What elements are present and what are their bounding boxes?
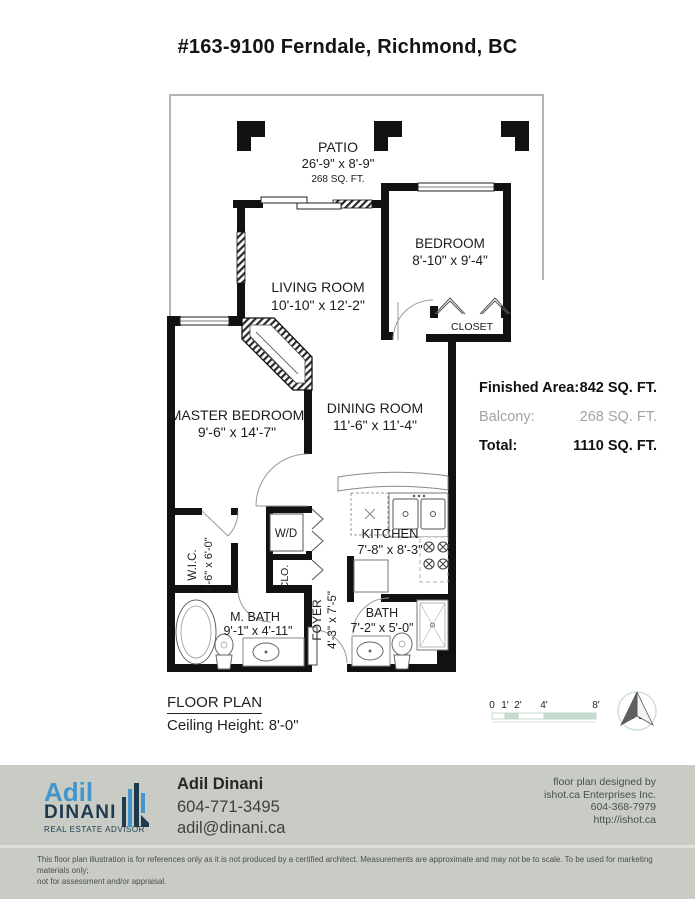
scale-tick: 8' (592, 700, 600, 711)
area-summary: Finished Area: 842 SQ. FT. Balcony: 268 … (479, 380, 657, 467)
dining-room-dims: 11'-6" x 11'-4" (333, 417, 417, 433)
floor-plan-heading: FLOOR PLAN (167, 694, 262, 714)
patio-dims: 26'-9" x 8'-9" (302, 156, 375, 171)
bath-dims: 7'-2" x 5'-0" (351, 621, 414, 635)
sink-icon (421, 499, 445, 529)
balcony-value: 268 SQ. FT. (580, 409, 657, 425)
patio-label: PATIO (318, 139, 358, 155)
toilet-base (394, 655, 410, 669)
wic-label: W.I.C. (187, 549, 199, 580)
scale-tick: 2' (514, 700, 522, 711)
living-room-label: LIVING ROOM (271, 279, 364, 295)
scale-tick: 1' (501, 700, 509, 711)
patio-slider-panel (297, 203, 341, 209)
mbath-dims: 9'-1" x 4'-11" (223, 624, 292, 638)
plan-meta: FLOOR PLAN Ceiling Height: 8'-0" (167, 694, 299, 734)
agent-name: Adil Dinani (177, 774, 285, 795)
brand-logo: Adil DINANI REAL ESTATE ADVISOR (44, 781, 174, 834)
patio-pillars (237, 121, 529, 151)
scale-tick: 4' (540, 700, 548, 711)
disclaimer-line: This floor plan illustration is for refe… (37, 854, 677, 876)
toilet-icon (392, 633, 412, 655)
compass-icon: N (618, 692, 656, 730)
tub-icon (176, 600, 216, 664)
scale-tick: 0 (489, 700, 495, 711)
hatched-walls (237, 200, 372, 283)
bedroom-dims: 8'-10" x 9'-4" (412, 253, 488, 268)
footer-divider (0, 845, 695, 848)
kitchen-bar-counter (338, 472, 448, 491)
logo-last-name: DINANI (44, 803, 174, 822)
bath-label: BATH (366, 606, 398, 620)
living-room-dims: 10'-10" x 12'-2" (271, 297, 365, 313)
kitchen-dims: 7'-8" x 8'-3" (357, 542, 423, 557)
finished-area-row: Finished Area: 842 SQ. FT. (479, 380, 657, 396)
master-door (256, 454, 308, 506)
designer-line: floor plan designed by (544, 776, 656, 789)
dining-room-label: DINING ROOM (327, 400, 423, 416)
floor-plan-page: #163-9100 Ferndale, Richmond, BC (0, 0, 695, 899)
footer: Adil DINANI REAL ESTATE ADVISOR Adil Din… (0, 765, 695, 899)
total-value: 1110 SQ. FT. (573, 438, 657, 454)
wic-dims: 4'-6" x 6'-0" (203, 537, 215, 593)
toilet-base (216, 655, 232, 669)
designer-line: ishot.ca Enterprises Inc. (544, 789, 656, 802)
ceiling-height: Ceiling Height: 8'-0" (167, 717, 299, 734)
agent-email: adil@dinani.ca (177, 818, 285, 839)
patio-area: 268 SQ. FT. (311, 174, 364, 185)
scale-bar: 0 1' 2' 4' 8' (489, 700, 600, 722)
fireplace-icon (242, 318, 312, 390)
total-area-row: Total: 1110 SQ. FT. (479, 438, 657, 454)
sink-icon (393, 499, 418, 529)
balcony-label: Balcony: (479, 409, 535, 425)
foyer-label: FOYER (310, 599, 324, 641)
foyer-dims: 4'-3" x 7'-5" (327, 591, 339, 649)
kitchen-label: KITCHEN (361, 526, 418, 541)
bedroom-label: BEDROOM (415, 236, 485, 251)
disclaimer: This floor plan illustration is for refe… (37, 854, 677, 887)
logo-first-name: Adil (44, 781, 174, 803)
agent-phone: 604-771-3495 (177, 797, 285, 818)
mbath-label: M. BATH (230, 610, 280, 624)
balcony-area-row: Balcony: 268 SQ. FT. (479, 409, 657, 425)
wic-door (202, 511, 228, 536)
logo-tagline: REAL ESTATE ADVISOR (44, 825, 174, 834)
agent-contact: Adil Dinani 604-771-3495 adil@dinani.ca (177, 774, 285, 839)
fridge-icon (354, 560, 388, 592)
patio-slider-panel (261, 197, 307, 203)
master-bedroom-label: MASTER BEDROOM (170, 407, 305, 423)
finished-area-label: Finished Area: (479, 380, 579, 396)
wd-closet-doors (312, 509, 323, 580)
wd-label: W/D (275, 528, 297, 540)
finished-area-value: 842 SQ. FT. (580, 380, 657, 396)
designer-line: 604-368-7979 (544, 801, 656, 814)
clo-label: CLO. (279, 565, 291, 590)
designer-credit: floor plan designed by ishot.ca Enterpri… (544, 776, 656, 826)
disclaimer-line: not for assessment and/or appraisal. (37, 876, 677, 887)
closet-label: CLOSET (451, 321, 494, 333)
designer-line: http://ishot.ca (544, 814, 656, 827)
master-bedroom-dims: 9'-6" x 14'-7" (198, 424, 276, 440)
buildings-icon (122, 783, 150, 829)
total-label: Total: (479, 438, 517, 454)
closet-bifold-doors (435, 298, 510, 314)
